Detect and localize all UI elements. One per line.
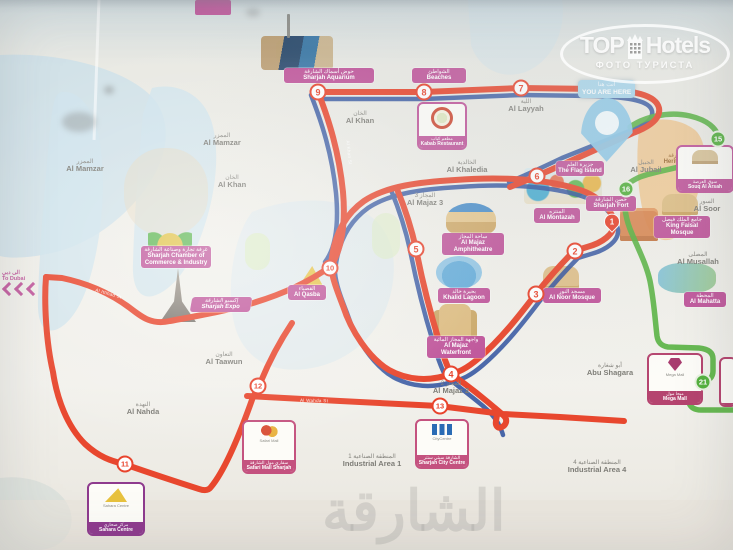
you-are-here-marker: أنت هنا YOU ARE HERE	[578, 80, 635, 162]
bus-stop-2: 2	[567, 243, 584, 260]
location-pin-icon	[581, 98, 633, 162]
bus-stop-3: 3	[528, 286, 545, 303]
bus-stop-10: 10	[322, 260, 339, 277]
you-are-here-tag: أنت هنا YOU ARE HERE	[578, 80, 635, 98]
bus-stop-1: 1	[601, 210, 624, 233]
bus-stop-16: 16	[618, 181, 635, 198]
bus-stop-5: 5	[408, 241, 425, 258]
bus-stop-9: 9	[310, 84, 327, 101]
bus-stop-6: 6	[529, 168, 546, 185]
bus-stop-15: 15	[710, 131, 727, 148]
you-are-here-label-en: YOU ARE HERE	[582, 89, 631, 96]
map-photo: Al Wahda StAl Khan StAl Ittihad StCornic…	[0, 0, 733, 550]
bus-stop-11: 11	[117, 456, 134, 473]
bus-stop-13: 13	[432, 398, 449, 415]
bus-stop-4: 4	[443, 366, 460, 383]
bus-stop-21: 21	[695, 374, 712, 391]
bus-stop-12: 12	[250, 378, 267, 395]
bus-stop-7: 7	[513, 80, 530, 97]
bus-stop-8: 8	[416, 84, 433, 101]
you-are-here-label-ar: أنت هنا	[582, 82, 631, 89]
